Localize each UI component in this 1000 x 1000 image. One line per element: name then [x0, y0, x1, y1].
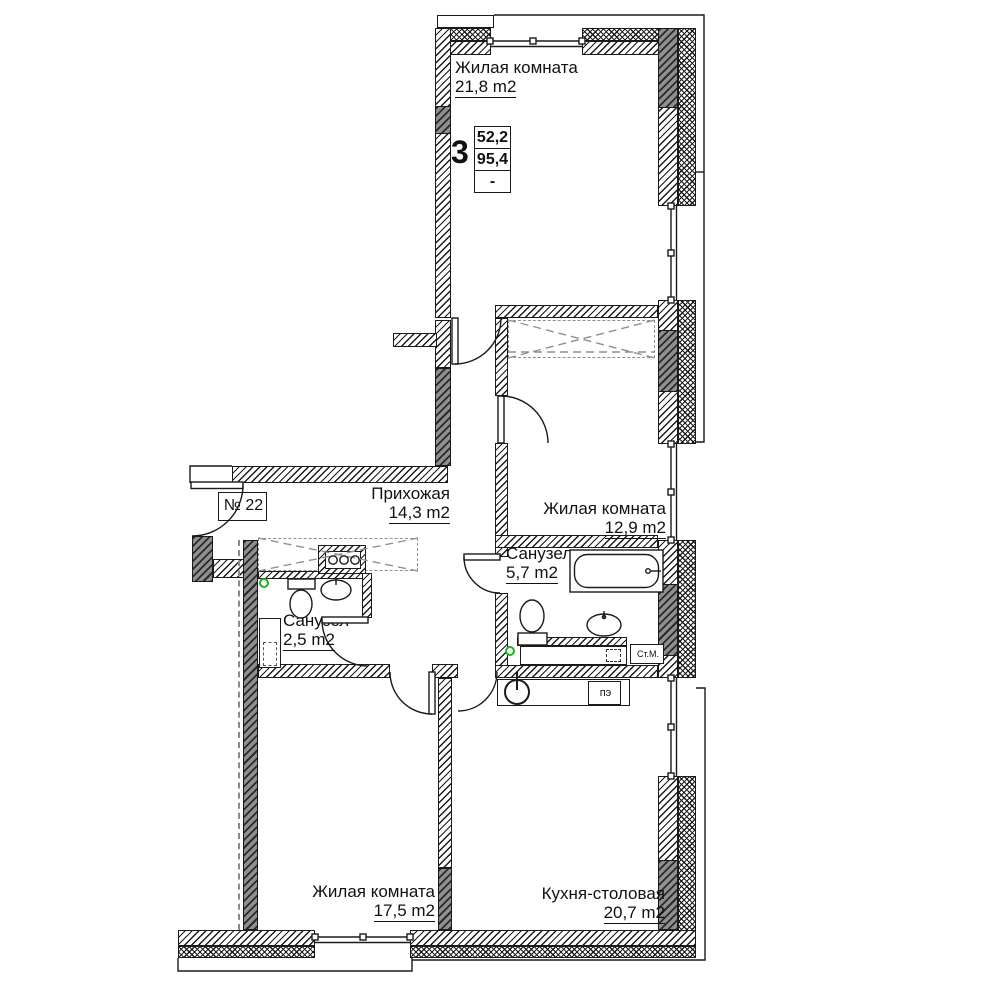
room-area: 20,7 m2	[604, 903, 665, 924]
wall-hallway-south-b	[432, 664, 458, 678]
stamp-living-area: 52,2	[475, 127, 510, 149]
washing-machine-label: Ст.М.	[631, 649, 665, 659]
room-area: 21,8 m2	[455, 77, 516, 98]
unit-box-face	[325, 551, 361, 569]
room-area: 2,5 m2	[283, 630, 335, 651]
wardrobe-room129-dashed	[508, 320, 655, 358]
room-name: Кухня-столовая	[542, 884, 665, 903]
room-label-bath-small: Санузел 2,5 m2	[283, 611, 349, 651]
wall-right-seg1-outer	[678, 28, 696, 206]
room-label-living-bottom: Жилая комната 17,5 m2	[298, 882, 435, 922]
window-bottom	[312, 934, 413, 943]
stove-box: пэ	[588, 681, 621, 705]
room-label-bath-big: Санузел 5,7 m2	[506, 544, 572, 584]
wall-hallway-north	[232, 466, 448, 483]
window-top	[487, 38, 585, 47]
west-wall-dashed-edge	[238, 540, 240, 930]
stamp-dash: -	[475, 171, 510, 193]
door-bath-big	[464, 554, 500, 593]
room-name: Санузел	[506, 544, 572, 563]
pier-bottom-partition	[438, 868, 452, 930]
duct-dashed-inset	[263, 642, 277, 666]
room-label-kitchen: Кухня-столовая 20,7 m2	[518, 884, 665, 924]
window-right-kitchen	[668, 675, 677, 779]
wall-bottom-left-inner	[178, 930, 315, 946]
room-name: Жилая комната	[312, 882, 435, 901]
wall-bottom-partition	[438, 678, 452, 868]
room-label-living-top: Жилая комната 21,8 m2	[455, 58, 578, 98]
wall-bath-big-west	[495, 593, 508, 672]
room-name: Санузел	[283, 611, 349, 630]
stove-label: пэ	[589, 687, 622, 699]
wall-bottom-right-outer	[410, 946, 696, 958]
door-living-bottom	[390, 672, 435, 714]
pier-right-2	[658, 330, 678, 392]
window-right-mid-room	[668, 441, 677, 543]
wall-kitchen-north	[495, 665, 658, 678]
sink-big-icon	[587, 611, 621, 636]
bathtub-icon	[570, 550, 663, 592]
wall-neck-west-upper	[435, 320, 451, 368]
wall-entrance-step	[213, 559, 245, 578]
room-name: Жилая комната	[543, 499, 666, 518]
pier-left-top	[435, 106, 451, 134]
washer-slot-dashed	[606, 649, 621, 662]
room-label-hallway: Прихожая 14,3 m2	[300, 484, 450, 524]
wall-bath-small-east	[362, 573, 372, 618]
bath-counter-hatch	[517, 637, 627, 646]
wall-right-seg4-outer	[678, 776, 696, 938]
wall-stub-corridor	[393, 333, 437, 347]
wall-left-top-room	[435, 28, 451, 318]
wall-room129-west-upper	[495, 318, 508, 396]
room-area: 12,9 m2	[605, 518, 666, 539]
wall-neck-west-lower	[435, 368, 451, 466]
wall-bottom-right-inner	[410, 930, 696, 946]
balcony-outline-bottom-left	[178, 958, 412, 971]
pier-entrance	[192, 536, 213, 582]
wall-bottom-left-outer	[178, 946, 315, 958]
window-right-top-room	[668, 203, 677, 303]
wall-right-seg2-outer	[678, 300, 696, 444]
room-area: 17,5 m2	[374, 901, 435, 922]
parapet-box	[437, 15, 494, 28]
pier-right-1	[658, 28, 678, 108]
room-area: 14,3 m2	[389, 503, 450, 524]
stamp-rooms-count: 3	[451, 134, 469, 171]
door-living-mid	[498, 396, 548, 443]
apartment-number-box: № 22	[218, 492, 267, 521]
floor-plan: Ст.М. пэ № 22 3 52,2 95,4 - Жилая комнат…	[0, 0, 1000, 1000]
room-label-living-mid: Жилая комната 12,9 m2	[520, 499, 666, 539]
room-name: Жилая комната	[455, 58, 578, 77]
washing-machine-box: Ст.М.	[630, 644, 664, 664]
wall-right-seg3-outer	[678, 540, 696, 678]
stamp-box: 52,2 95,4 -	[474, 126, 511, 193]
wall-west-shared	[243, 540, 258, 930]
apartment-number: № 22	[219, 497, 268, 515]
wall-room129-north	[495, 305, 658, 318]
door-kitchen	[458, 672, 497, 711]
door-living-top	[452, 318, 501, 364]
sink-small-icon	[321, 579, 351, 600]
room-area: 5,7 m2	[506, 563, 558, 584]
stamp-total-area: 95,4	[475, 149, 510, 171]
room-name: Прихожая	[371, 484, 450, 503]
entrance-niche-outline	[190, 466, 232, 483]
